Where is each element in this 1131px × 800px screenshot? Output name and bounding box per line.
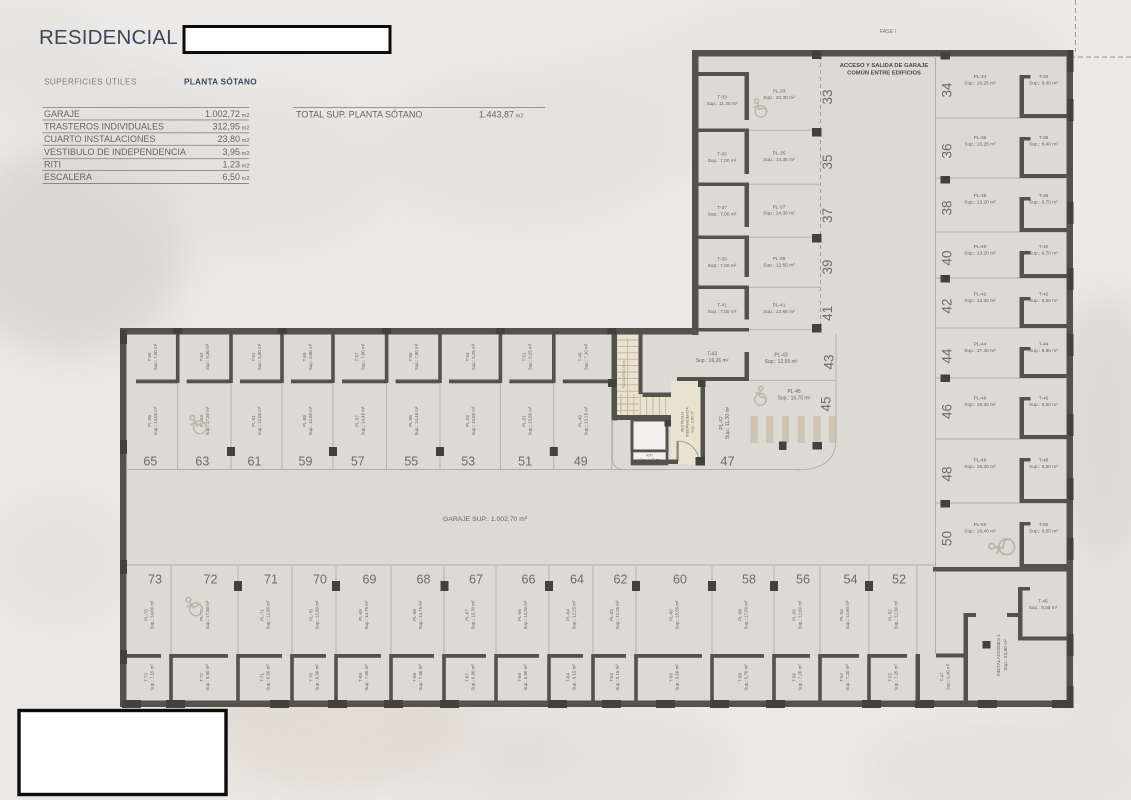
svg-text:T-68: T-68	[412, 673, 417, 682]
svg-text:Sup.: 16,30 m²: Sup.: 16,30 m²	[964, 402, 996, 408]
svg-text:41: 41	[820, 306, 835, 321]
svg-text:68: 68	[417, 572, 431, 586]
svg-text:Sup.: 12,65 m²: Sup.: 12,65 m²	[763, 262, 795, 268]
svg-text:Sup.: 8,25 m²: Sup.: 8,25 m²	[528, 343, 533, 370]
svg-text:Sup.: 7,50 m²: Sup.: 7,50 m²	[418, 664, 423, 691]
svg-text:Sup.: 11,35 m²: Sup.: 11,35 m²	[706, 101, 738, 107]
svg-text:45: 45	[819, 396, 834, 411]
svg-text:PL-53: PL-53	[465, 415, 470, 427]
svg-text:Sup.: 8,90 m²: Sup.: 8,90 m²	[205, 664, 210, 691]
svg-text:T-60: T-60	[669, 673, 674, 682]
svg-text:INSTALACIONES 1: INSTALACIONES 1	[996, 634, 1002, 676]
svg-text:T-36: T-36	[1039, 135, 1049, 141]
svg-text:T-42: T-42	[1039, 291, 1049, 297]
svg-text:T-56: T-56	[792, 673, 797, 682]
svg-text:Sup.: 14,45 m²: Sup.: 14,45 m²	[414, 406, 419, 435]
svg-text:CUARTO INSTALACIONES: CUARTO INSTALACIONES	[44, 134, 156, 144]
svg-text:Sup.: 14,35 m²: Sup.: 14,35 m²	[763, 211, 795, 217]
svg-text:PL-54: PL-54	[839, 609, 844, 621]
svg-text:Sup.: 13,30 m²: Sup.: 13,30 m²	[964, 298, 996, 304]
svg-text:PL-68: PL-68	[412, 609, 417, 621]
svg-text:T-54: T-54	[839, 673, 844, 682]
svg-text:Sup.: 6,75 m²: Sup.: 6,75 m²	[1029, 250, 1058, 256]
svg-text:Sup.: 6,85 m²: Sup.: 6,85 m²	[1029, 298, 1058, 304]
svg-text:Sup.: 6,70 m²: Sup.: 6,70 m²	[744, 664, 749, 691]
svg-text:PL-73: PL-73	[144, 609, 149, 621]
svg-text:T-44: T-44	[1039, 341, 1049, 347]
svg-text:Sup.: 11,30 m²: Sup.: 11,30 m²	[725, 406, 731, 439]
svg-text:T-71: T-71	[260, 673, 265, 682]
svg-text:T-59: T-59	[302, 352, 307, 361]
svg-text:Sup.: 12,80 m²: Sup.: 12,80 m²	[315, 600, 320, 629]
svg-text:Sup.: 6,80 m²: Sup.: 6,80 m²	[308, 343, 313, 370]
svg-text:312,95: 312,95	[212, 121, 240, 131]
svg-text:PL-39: PL-39	[773, 256, 786, 262]
svg-text:Sup.: 13,20 m²: Sup.: 13,20 m²	[964, 199, 996, 205]
svg-text:63: 63	[195, 454, 209, 468]
svg-text:PL-64: PL-64	[566, 609, 571, 621]
svg-text:PL-49: PL-49	[577, 415, 582, 427]
svg-text:PL-62: PL-62	[609, 609, 614, 621]
svg-text:Sup.: 8,85 m²: Sup.: 8,85 m²	[1029, 348, 1058, 354]
svg-text:T-41: T-41	[717, 303, 727, 309]
svg-text:Sup.: 7,00 m²: Sup.: 7,00 m²	[708, 263, 737, 269]
svg-text:Sup.: 6,90 m²: Sup.: 6,90 m²	[471, 664, 476, 691]
svg-text:Sup.: 9,60 m²: Sup.: 9,60 m²	[675, 664, 680, 691]
svg-text:61: 61	[248, 454, 262, 468]
svg-text:Sup.: 6,40 m²: Sup.: 6,40 m²	[946, 663, 951, 690]
svg-text:70: 70	[313, 572, 327, 586]
svg-text:Sup.: 12,60 m²: Sup.: 12,60 m²	[308, 406, 313, 435]
svg-text:Sup.: 12,00 m²: Sup.: 12,00 m²	[257, 406, 262, 435]
svg-text:PL-50: PL-50	[974, 522, 987, 528]
svg-text:PL-70: PL-70	[309, 609, 314, 621]
svg-text:PL-60: PL-60	[669, 609, 674, 621]
svg-text:3,95: 3,95	[222, 147, 240, 157]
svg-text:64: 64	[570, 572, 584, 586]
svg-text:67: 67	[469, 572, 483, 586]
svg-text:44: 44	[940, 348, 955, 364]
svg-text:Sup.: 12,30 m²: Sup.: 12,30 m²	[894, 600, 899, 629]
svg-text:35: 35	[820, 154, 835, 169]
svg-text:Sup.: 6,50 m²: Sup.: 6,50 m²	[266, 664, 271, 691]
svg-text:T-63: T-63	[199, 352, 204, 361]
svg-text:Sup.: 15,50 m²: Sup.: 15,50 m²	[528, 406, 533, 435]
svg-text:36: 36	[940, 143, 955, 158]
svg-text:T-52: T-52	[888, 673, 893, 682]
svg-text:Sup.: 18,40 m²: Sup.: 18,40 m²	[964, 529, 996, 535]
svg-text:PL-51: PL-51	[522, 415, 527, 427]
svg-text:Sup.: 7,00 m²: Sup.: 7,00 m²	[708, 158, 737, 164]
svg-text:PL-37: PL-37	[773, 204, 786, 210]
svg-text:Sup.: 14,00 m²: Sup.: 14,00 m²	[150, 600, 155, 629]
svg-text:40: 40	[940, 250, 955, 265]
svg-text:T-58: T-58	[738, 673, 743, 682]
svg-text:48: 48	[940, 466, 955, 481]
svg-text:Sup.: 14,00 m²: Sup.: 14,00 m²	[153, 406, 158, 435]
svg-text:T-62: T-62	[609, 673, 614, 682]
svg-text:Sup.: 14,45 m²: Sup.: 14,45 m²	[360, 406, 365, 435]
svg-text:T-45: T-45	[1038, 598, 1048, 604]
svg-text:T-53: T-53	[465, 352, 470, 361]
svg-text:PL-71: PL-71	[260, 609, 265, 621]
svg-text:PL-61: PL-61	[251, 415, 256, 427]
svg-text:Sup.: 15,50 m²: Sup.: 15,50 m²	[471, 406, 476, 435]
svg-text:T-47: T-47	[940, 672, 945, 681]
svg-text:1.002,72: 1.002,72	[205, 109, 240, 119]
svg-text:ACCESO Y SALIDA DE GARAJE: ACCESO Y SALIDA DE GARAJE	[840, 63, 929, 69]
svg-text:56: 56	[796, 572, 810, 586]
svg-text:60: 60	[673, 572, 687, 586]
svg-text:m2: m2	[242, 113, 250, 119]
svg-text:T-38: T-38	[1039, 193, 1049, 199]
svg-text:m2: m2	[516, 114, 524, 120]
svg-text:Sup.: 12,25 m²: Sup.: 12,25 m²	[615, 600, 620, 629]
svg-text:T-37: T-37	[717, 205, 727, 211]
svg-text:T-34: T-34	[1039, 74, 1049, 80]
svg-text:Sup.: 7,80 m²: Sup.: 7,80 m²	[360, 343, 365, 370]
svg-text:39: 39	[820, 259, 835, 274]
svg-text:Sup.: 16,70 m²: Sup.: 16,70 m²	[778, 395, 811, 401]
svg-text:Sup.: 17,30 m²: Sup.: 17,30 m²	[964, 348, 996, 354]
svg-text:ESCALERA 6,50 m²: ESCALERA 6,50 m²	[622, 360, 626, 389]
svg-text:ESCALERA: ESCALERA	[44, 172, 92, 182]
svg-text:Sup.: 7,25 m²: Sup.: 7,25 m²	[894, 664, 899, 691]
svg-text:PLANTA SÓTANO: PLANTA SÓTANO	[184, 76, 257, 87]
svg-text:Sup.: 7,00 m²: Sup.: 7,00 m²	[708, 309, 737, 315]
svg-text:PL-56: PL-56	[792, 609, 797, 621]
svg-text:Sup.: 23,80 m²: Sup.: 23,80 m²	[1003, 639, 1009, 671]
svg-text:T-65: T-65	[147, 352, 152, 361]
svg-text:m2: m2	[242, 164, 250, 170]
svg-text:T-51: T-51	[522, 352, 527, 361]
svg-text:Sup.: 20,30 m²: Sup.: 20,30 m²	[763, 95, 795, 101]
svg-text:Sup.: 12,25 m²: Sup.: 12,25 m²	[572, 600, 577, 629]
svg-text:PL-58: PL-58	[738, 609, 743, 621]
svg-text:T-69: T-69	[358, 673, 363, 682]
svg-text:T-72: T-72	[199, 673, 204, 682]
svg-text:T-43: T-43	[707, 351, 717, 357]
svg-text:T-39: T-39	[717, 256, 727, 262]
svg-text:T-33: T-33	[717, 94, 727, 100]
svg-text:PL-69: PL-69	[358, 609, 363, 621]
svg-text:PL-40: PL-40	[974, 244, 987, 250]
svg-text:m2: m2	[242, 176, 250, 182]
svg-text:T-35: T-35	[717, 151, 727, 157]
svg-text:PL-33: PL-33	[773, 88, 786, 94]
svg-text:Sup.: 8,25 m²: Sup.: 8,25 m²	[471, 343, 476, 370]
svg-text:T-61: T-61	[251, 352, 256, 361]
svg-text:T-55: T-55	[408, 352, 413, 361]
svg-text:50: 50	[940, 531, 955, 546]
svg-text:73: 73	[148, 572, 162, 586]
svg-text:55: 55	[404, 454, 418, 468]
svg-text:SUPERFICIES ÚTILES: SUPERFICIES ÚTILES	[44, 77, 137, 87]
svg-text:Sup.: 14,75 m²: Sup.: 14,75 m²	[364, 600, 369, 629]
svg-text:T-73: T-73	[144, 673, 149, 682]
svg-text:37: 37	[820, 208, 835, 223]
svg-text:6,50: 6,50	[222, 172, 240, 182]
svg-text:46: 46	[940, 404, 955, 419]
svg-text:Sup.: 7,15 m²: Sup.: 7,15 m²	[150, 664, 155, 691]
svg-text:62: 62	[614, 572, 628, 586]
svg-text:51: 51	[518, 454, 532, 468]
svg-text:65: 65	[143, 454, 157, 468]
svg-text:PL-36: PL-36	[974, 135, 987, 141]
svg-text:23,80: 23,80	[217, 134, 240, 144]
svg-text:m2: m2	[242, 125, 250, 131]
svg-text:PL-66: PL-66	[517, 609, 522, 621]
svg-text:Sup.: 13,15 m²: Sup.: 13,15 m²	[583, 406, 588, 435]
svg-text:Sup.: 12,60 m²: Sup.: 12,60 m²	[798, 600, 803, 629]
svg-text:GARAJE: GARAJE	[44, 109, 80, 119]
svg-text:Sup.: 12,60 m²: Sup.: 12,60 m²	[845, 600, 850, 629]
svg-text:Sup.: 8,40 m²: Sup.: 8,40 m²	[1029, 142, 1058, 148]
svg-text:T-64: T-64	[566, 673, 571, 682]
svg-text:T-48: T-48	[1039, 458, 1049, 464]
svg-text:PL-65: PL-65	[147, 415, 152, 427]
svg-text:Sup.: 6,80 m²: Sup.: 6,80 m²	[257, 343, 262, 370]
svg-text:Sup.: 16,26 m²: Sup.: 16,26 m²	[696, 358, 729, 364]
svg-text:Sup.: 6,75 m²: Sup.: 6,75 m²	[1029, 199, 1058, 205]
svg-text:33: 33	[820, 89, 835, 104]
svg-text:53: 53	[461, 454, 475, 468]
svg-text:54: 54	[844, 572, 858, 586]
svg-text:Sup.: 8,40 m²: Sup.: 8,40 m²	[1029, 80, 1058, 86]
svg-text:43: 43	[822, 354, 837, 369]
svg-text:PL-55: PL-55	[408, 415, 413, 427]
svg-text:FASE I: FASE I	[879, 29, 897, 35]
svg-text:Sup.: 7,50 m²: Sup.: 7,50 m²	[364, 664, 369, 691]
svg-text:Sup.: 9,55 m²: Sup.: 9,55 m²	[1029, 605, 1058, 611]
svg-text:COMÚN ENTRE EDIFICIOS: COMÚN ENTRE EDIFICIOS	[847, 70, 921, 77]
svg-text:Sup.: 16,30 m²: Sup.: 16,30 m²	[964, 464, 996, 470]
svg-text:T-40: T-40	[1039, 244, 1049, 250]
svg-text:Sup.: 7,80 m²: Sup.: 7,80 m²	[414, 343, 419, 370]
svg-text:m2: m2	[242, 138, 250, 144]
svg-text:PL-59: PL-59	[302, 415, 307, 427]
svg-text:Sup.: 13,70 m²: Sup.: 13,70 m²	[471, 600, 476, 629]
svg-text:Sup.: 6,15 m²: Sup.: 6,15 m²	[572, 664, 577, 691]
svg-text:Sup.: 18,95 m²: Sup.: 18,95 m²	[675, 600, 680, 629]
svg-text:TRASTEROS INDIVIDUALES: TRASTEROS INDIVIDUALES	[44, 121, 164, 131]
svg-text:PL-34: PL-34	[974, 74, 987, 80]
svg-text:T-50: T-50	[1039, 522, 1049, 528]
svg-text:57: 57	[351, 454, 365, 468]
svg-text:T-66: T-66	[517, 673, 522, 682]
svg-text:Sup.: 9,30 m²: Sup.: 9,30 m²	[205, 343, 210, 370]
svg-text:PL-52: PL-52	[888, 609, 893, 621]
svg-text:Sup.: 17,00 m²: Sup.: 17,00 m²	[744, 600, 749, 629]
svg-text:1.443,87: 1.443,87	[479, 110, 514, 120]
svg-text:Sup.: 7,20 m²: Sup.: 7,20 m²	[798, 664, 803, 691]
svg-text:59: 59	[299, 454, 313, 468]
svg-text:Sup.: 12,65 m²: Sup.: 12,65 m²	[763, 309, 795, 315]
svg-text:Sup.: 7,00 m²: Sup.: 7,00 m²	[708, 211, 737, 217]
svg-text:Sup.: 8,50 m²: Sup.: 8,50 m²	[1029, 464, 1058, 470]
svg-text:PL-35: PL-35	[773, 151, 786, 157]
svg-text:PL-42: PL-42	[974, 291, 987, 297]
svg-text:Sup.: 3,95 m²: Sup.: 3,95 m²	[691, 410, 695, 432]
svg-text:Sup.: 8,50 m²: Sup.: 8,50 m²	[1029, 402, 1058, 408]
svg-text:GARAJE SUP.: 1.002,70 m²: GARAJE SUP.: 1.002,70 m²	[443, 516, 528, 523]
svg-text:Sup.: 14,35 m²: Sup.: 14,35 m²	[763, 157, 795, 163]
svg-text:1,23: 1,23	[222, 160, 240, 170]
svg-text:Sup.: 7,20 m²: Sup.: 7,20 m²	[845, 664, 850, 691]
svg-text:Sup.: 14,75 m²: Sup.: 14,75 m²	[418, 600, 423, 629]
svg-text:42: 42	[940, 298, 955, 313]
svg-text:49: 49	[574, 454, 588, 468]
svg-text:Sup.: 16,25 m²: Sup.: 16,25 m²	[964, 142, 996, 148]
svg-text:Sup.: 17,50 m²: Sup.: 17,50 m²	[205, 600, 210, 629]
svg-text:Sup.: 13,20 m²: Sup.: 13,20 m²	[964, 250, 996, 256]
svg-text:Sup.: 6,50 m²: Sup.: 6,50 m²	[315, 664, 320, 691]
svg-text:PL-67: PL-67	[465, 609, 470, 621]
svg-text:Sup.: 7,80 m²: Sup.: 7,80 m²	[153, 343, 158, 370]
svg-text:58: 58	[742, 572, 756, 586]
svg-text:T-67: T-67	[465, 673, 470, 682]
svg-text:34: 34	[940, 82, 955, 98]
svg-text:T-46: T-46	[1039, 396, 1049, 402]
svg-text:TOTAL SUP. PLANTA SÓTANO: TOTAL SUP. PLANTA SÓTANO	[296, 110, 422, 120]
svg-text:66: 66	[522, 572, 536, 586]
svg-text:PL-44: PL-44	[974, 341, 987, 347]
svg-text:Sup.: 12,80 m²: Sup.: 12,80 m²	[266, 600, 271, 629]
svg-text:Sup.: 7,10 m²: Sup.: 7,10 m²	[583, 343, 588, 370]
svg-text:PL-46: PL-46	[974, 396, 987, 402]
svg-text:52: 52	[892, 572, 906, 586]
svg-text:RESIDENCIAL: RESIDENCIAL	[39, 26, 178, 49]
svg-text:PL-43: PL-43	[774, 352, 788, 358]
svg-text:INDEPENDENCIA: INDEPENDENCIA	[686, 407, 690, 437]
svg-text:PL-41: PL-41	[773, 303, 786, 309]
svg-text:Sup.: 6,90 m²: Sup.: 6,90 m²	[523, 664, 528, 691]
svg-text:71: 71	[264, 572, 278, 586]
svg-text:T-57: T-57	[354, 352, 359, 361]
svg-text:38: 38	[940, 200, 955, 215]
svg-text:Sup.: 6,15 m²: Sup.: 6,15 m²	[615, 664, 620, 691]
svg-text:VESTIBULO: VESTIBULO	[681, 412, 685, 432]
svg-text:PL-57: PL-57	[354, 415, 359, 427]
svg-text:m2: m2	[242, 151, 250, 157]
svg-text:T-49: T-49	[577, 352, 582, 361]
svg-text:PL-45: PL-45	[787, 389, 801, 395]
svg-text:Sup.: 13,20 m²: Sup.: 13,20 m²	[523, 600, 528, 629]
svg-text:PL-48: PL-48	[974, 458, 987, 464]
svg-text:VESTIBULO DE INDEPENDENCIA: VESTIBULO DE INDEPENDENCIA	[44, 147, 186, 157]
svg-text:PL-38: PL-38	[974, 193, 987, 199]
svg-text:Sup.: 16,25 m²: Sup.: 16,25 m²	[964, 80, 996, 86]
svg-text:Sup.: 12,65 m²: Sup.: 12,65 m²	[765, 359, 798, 365]
svg-text:RITI: RITI	[44, 160, 61, 170]
svg-text:T-70: T-70	[309, 673, 314, 682]
svg-text:69: 69	[363, 572, 377, 586]
svg-text:72: 72	[204, 572, 218, 586]
svg-text:47: 47	[720, 454, 734, 469]
svg-text:Sup.: 9,55 m²: Sup.: 9,55 m²	[1029, 529, 1058, 535]
